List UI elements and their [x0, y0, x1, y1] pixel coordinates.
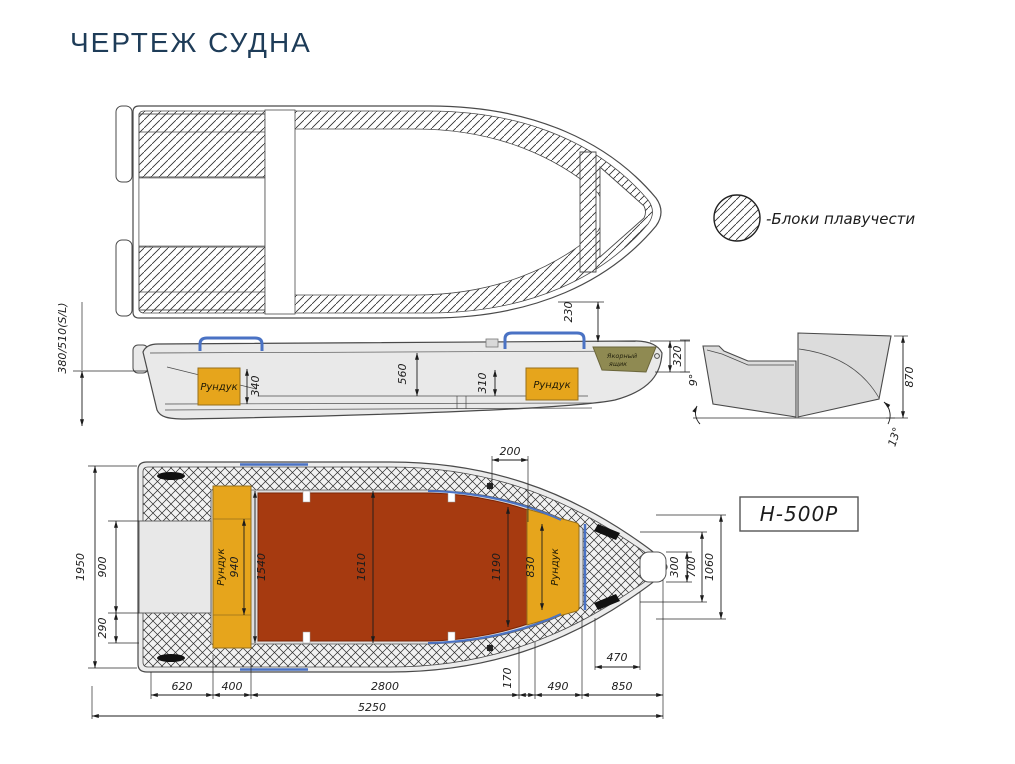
- section-view: 9° 13° 870: [680, 333, 916, 448]
- anchor-box-label-2: ящик: [609, 360, 627, 368]
- dim-340: 340: [249, 376, 262, 397]
- dim-1540: 1540: [255, 553, 268, 581]
- dim-700: 700: [685, 557, 698, 578]
- motor-well: [139, 521, 211, 613]
- stern-handle-bottom: [157, 654, 185, 662]
- dim-940: 940: [228, 557, 241, 578]
- model-badge: H-500P: [740, 497, 858, 531]
- fwd-locker-label-side: Рундук: [533, 380, 570, 391]
- transom-plate-top: [116, 106, 132, 182]
- buoyancy-block-stern-bottom: [139, 247, 265, 310]
- dim-470: 470: [607, 651, 628, 664]
- stern-well-top-view: [139, 178, 265, 246]
- top-view: [116, 106, 661, 318]
- dim-300: 300: [668, 557, 681, 578]
- anchor-box-label-1: Якорный: [606, 352, 637, 360]
- dim-850: 850: [612, 680, 633, 693]
- page-title: ЧЕРТЕЖ СУДНА: [70, 27, 312, 58]
- frame-mark-3: [303, 632, 310, 643]
- dim-310: 310: [476, 373, 489, 394]
- dim-290: 290: [96, 618, 109, 639]
- dim-1190: 1190: [490, 553, 503, 581]
- bow-tip-notch: [640, 552, 666, 582]
- dim-900: 900: [96, 557, 109, 578]
- fitting-mark-bottom: [487, 645, 493, 651]
- plan-view: Рундук Рундук 1950 900 290 940 1540 1610…: [74, 445, 726, 719]
- transom-plate-bottom: [116, 240, 132, 316]
- deadrise-angle-arc: [695, 406, 700, 424]
- dim-1950: 1950: [74, 553, 87, 581]
- stern-bulkhead-band: [265, 110, 295, 314]
- dim-560: 560: [396, 364, 409, 385]
- legend-label: -Блоки плавучести: [766, 210, 915, 228]
- dim-230: 230: [562, 302, 575, 323]
- dim-deadrise-angle: 9°: [687, 374, 700, 387]
- aft-locker-label-side: Рундук: [200, 382, 237, 393]
- side-view: Рундук Рундук Якорный ящик 380/510(S/L) …: [56, 302, 690, 427]
- dim-freeboard: 380/510(S/L): [56, 302, 69, 373]
- dim-870: 870: [903, 367, 916, 388]
- fwd-locker-label-plan: Рундук: [550, 548, 561, 585]
- aft-locker-label-plan: Рундук: [216, 548, 227, 585]
- section-stern-half: [703, 346, 796, 417]
- legend: -Блоки плавучести: [714, 195, 915, 241]
- dim-bow-angle: 13°: [885, 426, 903, 449]
- buoyancy-hatch-swatch-icon: [714, 195, 760, 241]
- dim-320: 320: [671, 346, 684, 367]
- boat-drawing-canvas: ЧЕРТЕЖ СУДНА -Блоки плавучести Рундук: [0, 0, 1015, 764]
- dim-200: 200: [500, 445, 521, 458]
- dim-400: 400: [222, 680, 243, 693]
- gunwale-cleat: [486, 339, 498, 347]
- dim-830: 830: [524, 557, 537, 578]
- dim-170: 170: [501, 668, 514, 689]
- drawing-page: ЧЕРТЕЖ СУДНА -Блоки плавучести Рундук: [0, 0, 1015, 764]
- dim-1060: 1060: [703, 553, 716, 581]
- dim-5250: 5250: [358, 701, 386, 714]
- frame-mark-1: [303, 491, 310, 502]
- buoyancy-strip-bow: [580, 152, 596, 272]
- section-bow-half: [798, 333, 891, 417]
- buoyancy-block-stern-top: [139, 114, 265, 177]
- dim-620: 620: [172, 680, 193, 693]
- dim-490: 490: [548, 680, 569, 693]
- stern-handle-top: [157, 472, 185, 480]
- bow-angle-arc: [884, 402, 890, 424]
- dim-1610: 1610: [355, 553, 368, 581]
- dim-2800: 2800: [371, 680, 399, 693]
- model-badge-label: H-500P: [760, 502, 839, 526]
